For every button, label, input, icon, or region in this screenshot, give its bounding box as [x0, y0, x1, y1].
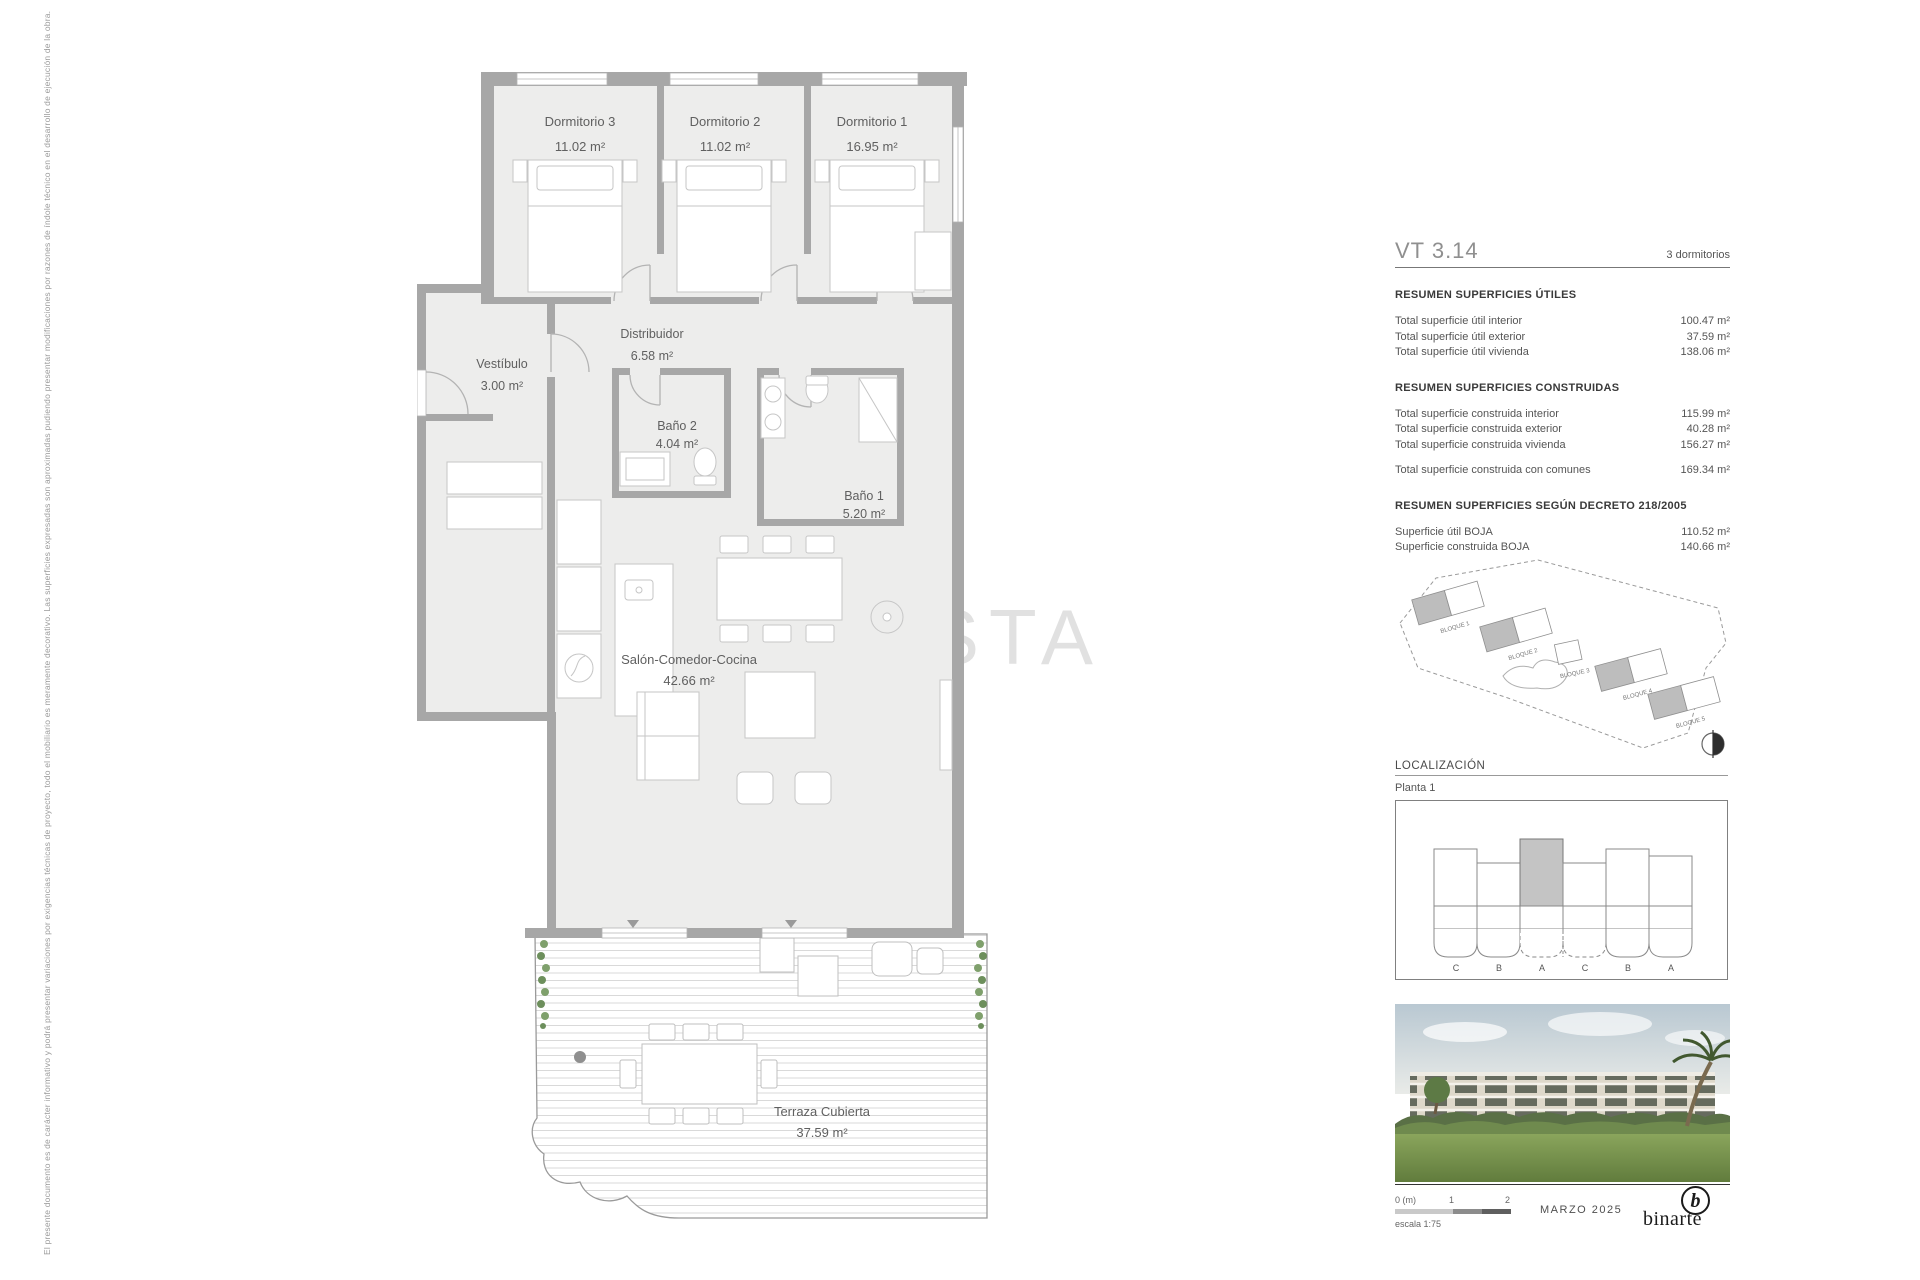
localization-floor: Planta 1	[1395, 782, 1435, 794]
row-label: Total superficie útil interior	[1395, 314, 1522, 330]
row-value: 169.34 m²	[1680, 463, 1730, 479]
scale-tick-two: 2	[1505, 1195, 1510, 1205]
surface-row: Total superficie útil interior 100.47 m²	[1395, 314, 1730, 330]
localization-title: LOCALIZACIÓN	[1395, 760, 1728, 776]
room-label: Vestíbulo	[476, 357, 527, 371]
row-label: Total superficie construida exterior	[1395, 422, 1562, 438]
block-label: BLOQUE 1	[1440, 621, 1471, 635]
block-label: BLOQUE 2	[1508, 648, 1539, 662]
room-area: 16.95 m²	[846, 139, 898, 154]
room-label: Distribuidor	[620, 327, 683, 341]
section-title-construidas: RESUMEN SUPERFICIES CONSTRUIDAS	[1395, 382, 1730, 394]
building-render-image	[1395, 1004, 1730, 1185]
section-title-utiles: RESUMEN SUPERFICIES ÚTILES	[1395, 289, 1730, 301]
north-arrow-icon	[1702, 730, 1724, 758]
terrace-column	[574, 1051, 586, 1063]
block-label: BLOQUE 5	[1675, 716, 1706, 730]
room-label: Dormitorio 2	[690, 114, 761, 129]
room-label: Baño 2	[657, 419, 697, 433]
room-area: 37.59 m²	[796, 1125, 848, 1140]
floor-plan: Terraza Cubierta 37.59 m²	[417, 72, 1007, 1232]
row-value: 100.47 m²	[1680, 314, 1730, 330]
panel-header: VT 3.14 3 dormitorios	[1395, 238, 1730, 268]
building-key-plan: C B A C B A	[1396, 801, 1727, 979]
row-value: 110.52 m²	[1681, 525, 1730, 541]
room-label: Baño 1	[844, 489, 884, 503]
unit-letter: A	[1539, 963, 1545, 973]
scale-tick-one: 1	[1449, 1195, 1454, 1205]
room-area: 42.66 m²	[663, 673, 715, 688]
unit-letters: C B A C B A	[1453, 963, 1674, 973]
unit-letter: B	[1625, 963, 1631, 973]
legal-disclaimer: El presente documento es de carácter inf…	[42, 25, 54, 1255]
row-value: 138.06 m²	[1680, 345, 1730, 361]
room-label: Terraza Cubierta	[774, 1104, 871, 1119]
terrace: Terraza Cubierta 37.59 m²	[532, 934, 987, 1218]
scale-bar	[1395, 1209, 1511, 1214]
row-label: Total superficie construida vivienda	[1395, 438, 1566, 454]
room-area: 5.20 m²	[843, 507, 885, 521]
row-label: Total superficie construida con comunes	[1395, 463, 1591, 479]
unit-letter: C	[1453, 963, 1460, 973]
row-value: 115.99 m²	[1681, 407, 1730, 423]
unit-code: VT 3.14	[1395, 238, 1479, 264]
room-area: 4.04 m²	[656, 437, 698, 451]
room-area: 6.58 m²	[631, 349, 673, 363]
unit-letter: B	[1496, 963, 1502, 973]
surface-row: Total superficie construida interior 115…	[1395, 407, 1730, 423]
scale-tick-zero: 0 (m)	[1395, 1195, 1416, 1205]
room-label: Dormitorio 1	[837, 114, 908, 129]
room-label: Dormitorio 3	[545, 114, 616, 129]
plan-date: MARZO 2025	[1540, 1204, 1622, 1216]
unit-type: 3 dormitorios	[1666, 249, 1730, 261]
site-plan: BLOQUE 1 BLOQUE 2 BLOQUE 3 BLOQUE 4 BLOQ…	[1388, 548, 1736, 760]
scale-label: escala 1:75	[1395, 1219, 1441, 1229]
room-area: 3.00 m²	[481, 379, 523, 393]
summary-panel: VT 3.14 3 dormitorios RESUMEN SUPERFICIE…	[1395, 238, 1730, 556]
unit-letter: A	[1668, 963, 1674, 973]
row-value: 40.28 m²	[1687, 422, 1730, 438]
surface-row: Total superficie construida exterior 40.…	[1395, 422, 1730, 438]
room-area: 11.02 m²	[555, 139, 606, 154]
room-area: 11.02 m²	[700, 139, 751, 154]
site-blocks: BLOQUE 1 BLOQUE 2 BLOQUE 3 BLOQUE 4 BLOQ…	[1412, 581, 1725, 735]
binarte-logo-text: binarte	[1643, 1208, 1702, 1231]
row-label: Superficie útil BOJA	[1395, 525, 1493, 541]
row-label: Total superficie útil exterior	[1395, 330, 1525, 346]
room-label: Salón-Comedor-Cocina	[621, 652, 758, 667]
unit-letter: C	[1582, 963, 1589, 973]
row-value: 37.59 m²	[1687, 330, 1730, 346]
surface-row: Total superficie útil vivienda 138.06 m²	[1395, 345, 1730, 361]
block-label: BLOQUE 3	[1560, 668, 1591, 680]
surface-row: Superficie útil BOJA 110.52 m²	[1395, 525, 1730, 541]
row-value: 156.27 m²	[1680, 438, 1730, 454]
localization-frame: C B A C B A	[1395, 800, 1728, 980]
row-label: Total superficie construida interior	[1395, 407, 1559, 423]
surface-row: Total superficie útil exterior 37.59 m²	[1395, 330, 1730, 346]
section-title-decreto: RESUMEN SUPERFICIES SEGÚN DECRETO 218/20…	[1395, 500, 1730, 512]
row-label: Total superficie útil vivienda	[1395, 345, 1529, 361]
surface-row: Total superficie construida vivienda 156…	[1395, 438, 1730, 454]
surface-row-comunes: Total superficie construida con comunes …	[1395, 463, 1730, 479]
